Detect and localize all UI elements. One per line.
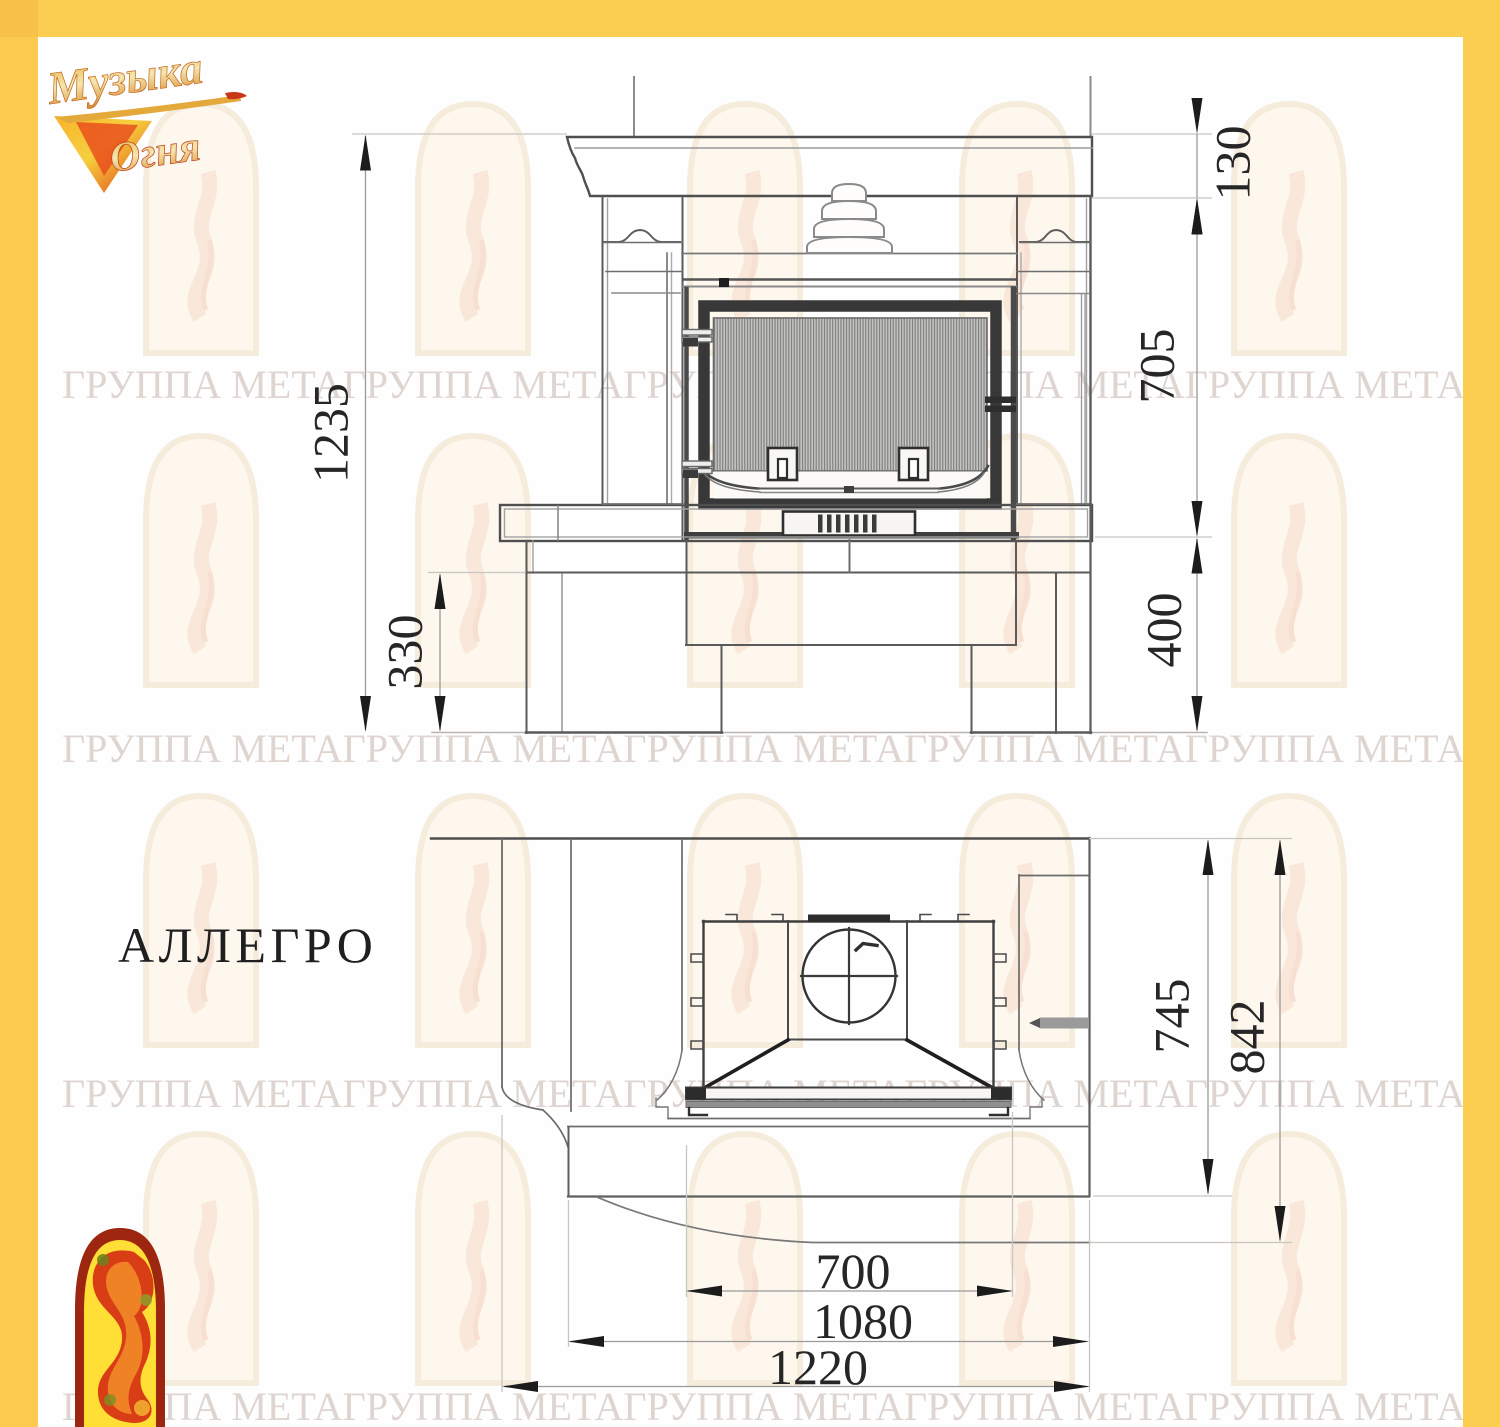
- svg-text:400: 400: [1135, 593, 1191, 668]
- svg-text:ГРУППА МЕТАГРУППА МЕТАГРУППА М: ГРУППА МЕТАГРУППА МЕТАГРУППА МЕТАГРУППА …: [62, 1384, 1466, 1427]
- svg-text:745: 745: [1143, 979, 1199, 1054]
- svg-text:АЛЛЕГРО: АЛЛЕГРО: [118, 917, 377, 973]
- svg-text:1220: 1220: [768, 1339, 868, 1395]
- svg-text:330: 330: [376, 615, 432, 690]
- svg-text:700: 700: [816, 1243, 891, 1299]
- svg-text:705: 705: [1128, 329, 1184, 404]
- svg-text:130: 130: [1204, 126, 1260, 201]
- svg-text:1235: 1235: [302, 383, 358, 483]
- svg-text:842: 842: [1218, 1000, 1274, 1075]
